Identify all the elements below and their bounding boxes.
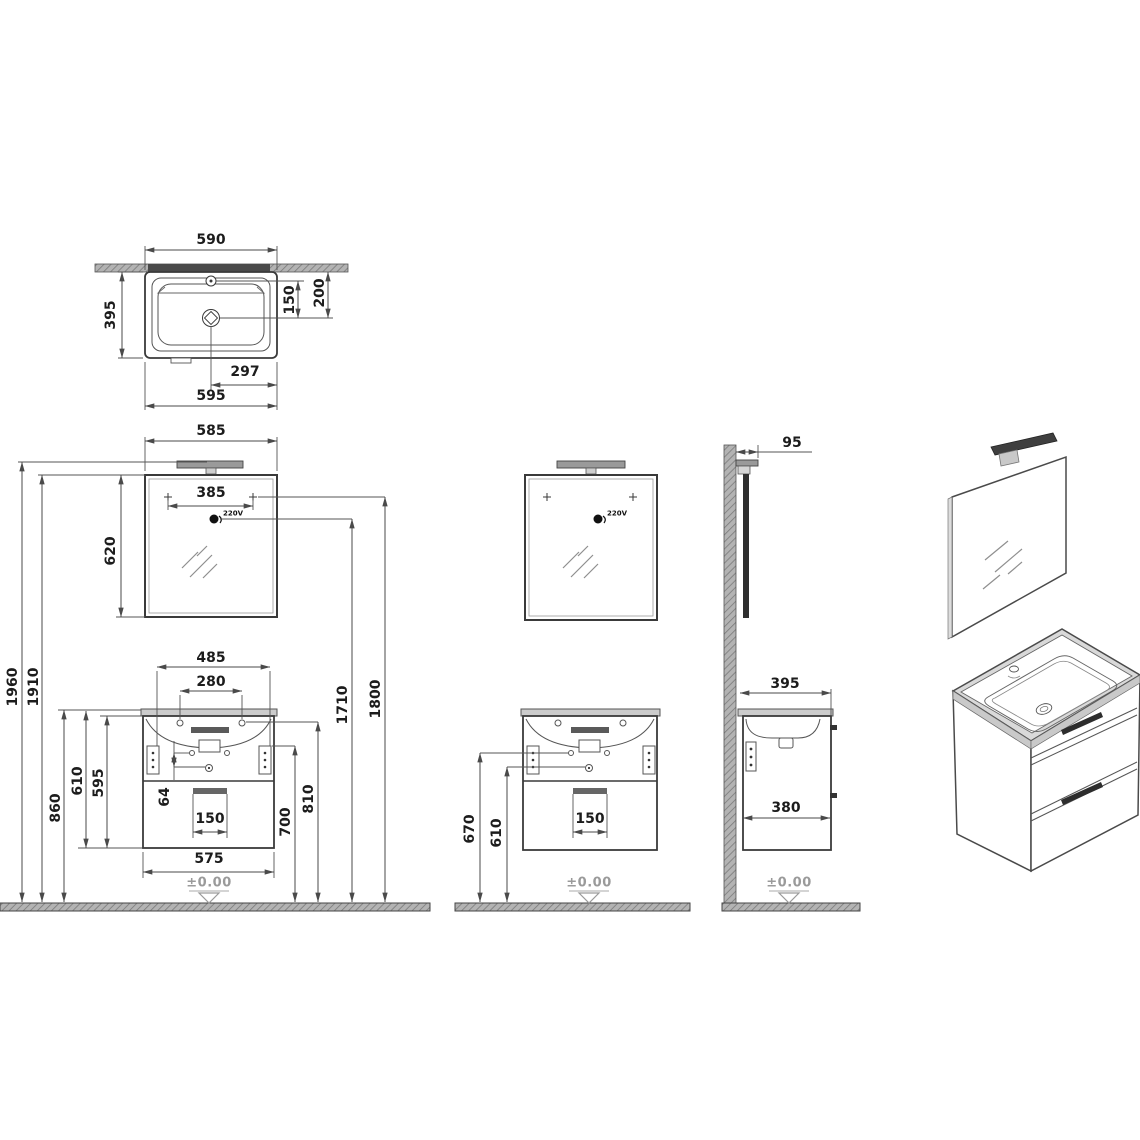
socket-symbol-front [210,515,219,524]
wall-hatch-side [724,445,736,903]
floor-hatch-center [455,903,690,911]
dim-mirror-height: 620 [104,536,118,565]
dim-top-depth: 395 [104,300,118,329]
dim-wall-to-drain: 200 [313,278,327,307]
socket-symbol-center [594,515,603,524]
level-marker-side [779,893,799,903]
dim-faucet-to-drain: 150 [283,285,297,314]
level-label-side: ±0.00 [766,877,811,890]
light-fixture-center [557,461,625,468]
basin-rim-center [521,709,660,716]
drawing-linework [0,0,1140,1140]
floor-hatch-front [0,903,430,911]
dim-hole-height: 1800 [369,680,383,719]
iso-view-drawing [948,433,1140,871]
iso-light-bar [991,433,1057,455]
dim-socket-height: 1710 [336,686,350,725]
voltage-label-center: 220V [607,511,627,518]
dim-bracket-height: 810 [302,784,316,813]
dim-bottom-width: 595 [196,389,225,403]
dim-bracket-spacing: 485 [196,651,225,665]
dim-cabinet-width: 575 [194,852,223,866]
level-label-center: ±0.00 [566,877,611,890]
dim-cabinet-height: 595 [92,768,106,797]
dim-mirror-width: 585 [196,424,225,438]
level-label-front: ±0.00 [186,877,231,890]
dim-basin-top-height: 860 [49,793,63,822]
cabinet-front [143,716,274,848]
dim-basin-cabinet-height: 610 [71,766,85,795]
dim-drain-width-front: 150 [195,812,224,826]
iso-mirror [952,457,1066,637]
light-fixture-side [736,460,758,466]
dim-total-height: 1960 [6,668,20,707]
voltage-label-front: 220V [223,511,243,518]
dim-mirror-top-height: 1910 [27,668,41,707]
cabinet-center [523,716,657,850]
dim-hole-spacing: 280 [196,675,225,689]
dim-bracket-height-center: 670 [463,814,477,843]
top-view-drawing [95,246,348,410]
dim-drain-to-edge: 297 [230,365,259,379]
dim-hole-height-center: 610 [490,818,504,847]
dim-cabinet-depth: 380 [771,801,800,815]
basin-rim-side [738,709,833,716]
dim-mirror-holes: 385 [196,486,225,500]
level-marker-front [199,893,219,903]
dim-basin-depth: 395 [770,677,799,691]
level-marker-center [579,893,599,903]
dim-top-width: 590 [196,233,225,247]
cabinet-side [743,716,831,850]
technical-drawing-canvas: 590 395 150 200 297 595 585 385 620 1960… [0,0,1140,1140]
mirror-side [743,474,749,618]
dim-light-depth: 95 [782,436,801,450]
dim-hole-offset: 64 [158,787,172,806]
dim-drain-width-center: 150 [575,812,604,826]
iso-faucet-hole [1010,666,1019,672]
floor-hatch-side [722,903,860,911]
dim-trap-height: 700 [279,807,293,836]
basin-rim-front [141,709,277,716]
